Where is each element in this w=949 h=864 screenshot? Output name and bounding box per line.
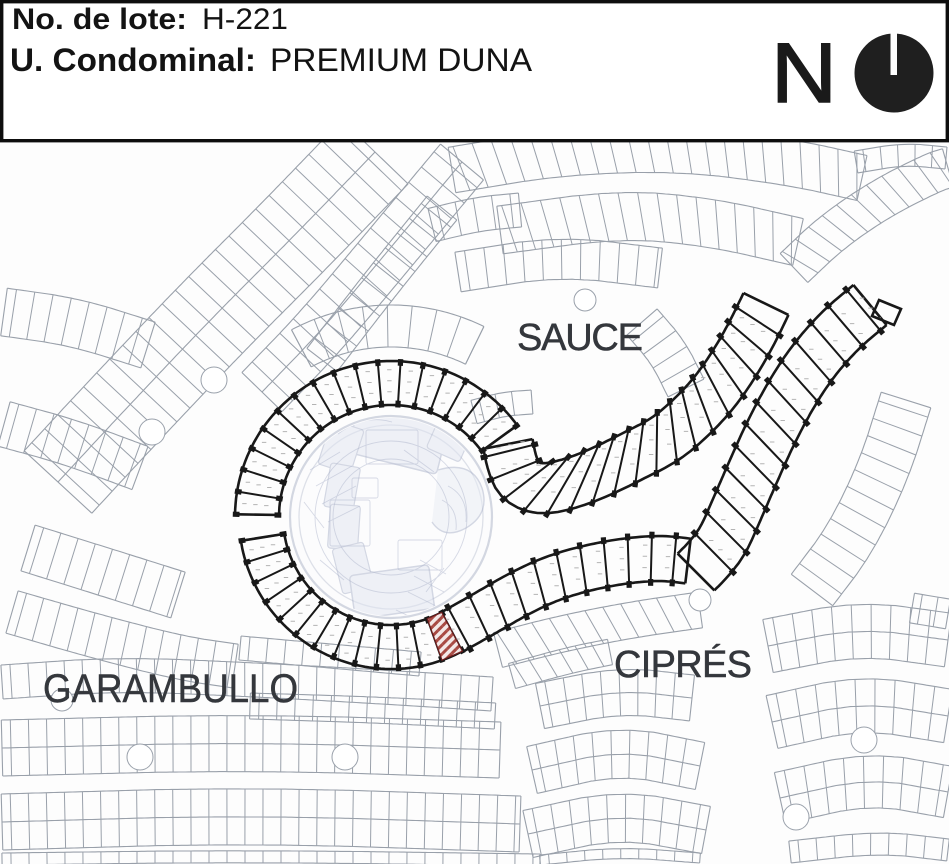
svg-text:No. de lote:H-221: No. de lote:H-221	[12, 3, 288, 36]
svg-text:SAUCE: SAUCE	[517, 317, 643, 359]
svg-text:U. Condominal:PREMIUM DUNA: U. Condominal:PREMIUM DUNA	[10, 42, 533, 78]
svg-text:GARAMBULLO: GARAMBULLO	[43, 667, 298, 711]
svg-text:N: N	[771, 26, 837, 120]
svg-text:CIPRÉS: CIPRÉS	[614, 643, 752, 686]
